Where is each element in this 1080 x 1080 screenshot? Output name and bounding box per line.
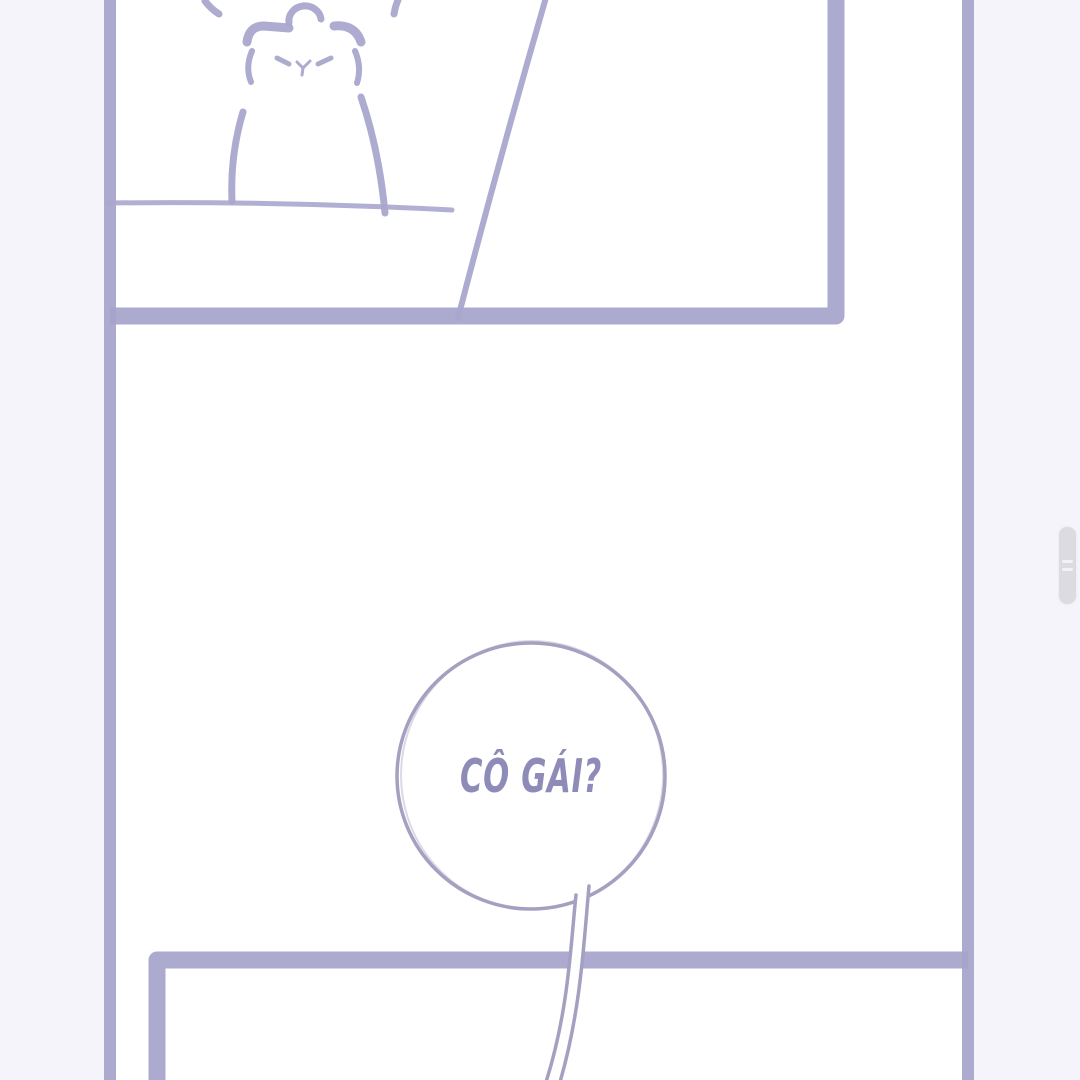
page-left-border (104, 0, 116, 1080)
comic-reader-viewport[interactable]: CÔ GÁI? (0, 0, 1080, 1080)
speech-bubble-text: CÔ GÁI? (460, 749, 602, 803)
scrollbar-grip-icon (1062, 560, 1073, 563)
scrollbar-grip-icon (1062, 568, 1073, 571)
scrollbar-thumb[interactable] (1059, 527, 1076, 604)
page-right-border (962, 0, 974, 1080)
comic-page-art: CÔ GÁI? (0, 0, 1080, 1080)
bear-motion-mark-right (394, 0, 398, 14)
